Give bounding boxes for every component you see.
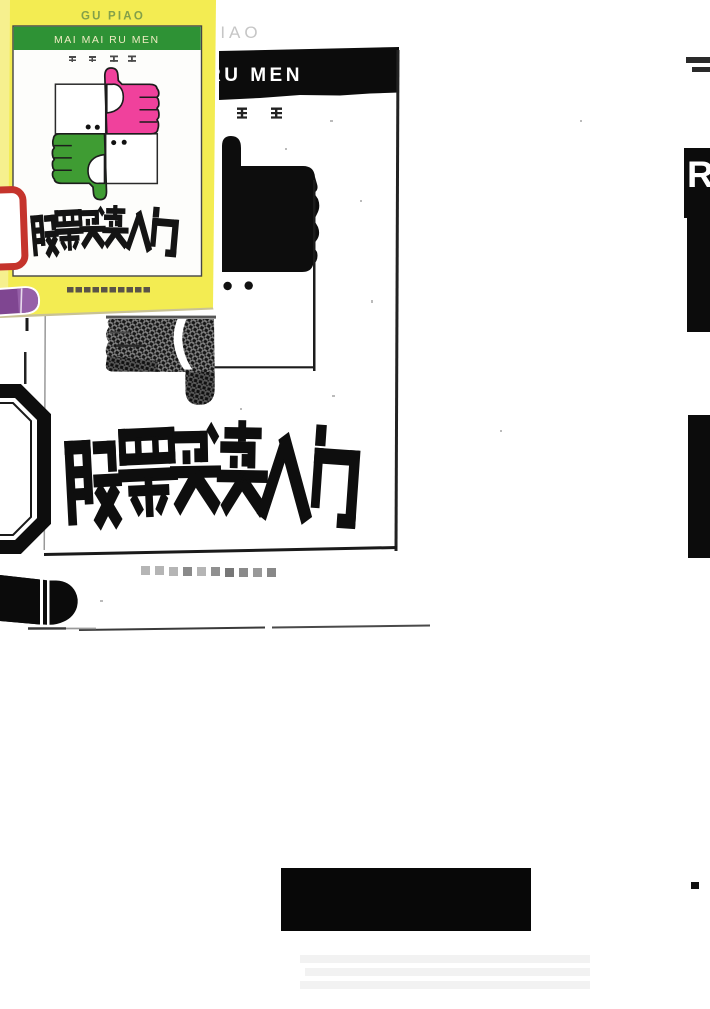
svg-text:GU PIAO: GU PIAO	[81, 11, 145, 23]
svg-text:MAI MAI RU MEN: MAI MAI RU MEN	[54, 34, 160, 46]
svg-text:RU MEN: RU MEN	[207, 65, 303, 86]
svg-text:R: R	[687, 154, 710, 195]
